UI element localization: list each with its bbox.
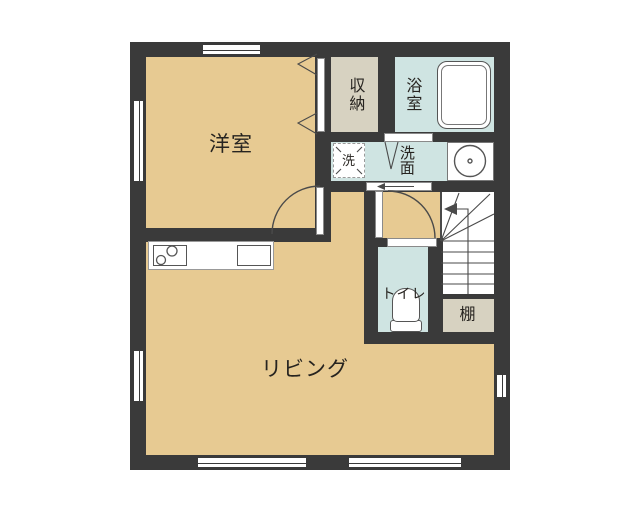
wall-below-toilet-shelf xyxy=(364,332,510,344)
stove xyxy=(153,245,187,266)
hall-door xyxy=(375,191,383,238)
wall-storage-bath xyxy=(378,57,395,142)
hall-cell-floor xyxy=(378,192,440,238)
window-bottom-left xyxy=(197,457,307,468)
living-floor xyxy=(146,242,366,456)
kitchen-sink xyxy=(237,245,271,266)
stairs-floor xyxy=(441,192,494,294)
living-floor-east xyxy=(366,344,494,456)
sink-counter xyxy=(447,142,494,181)
western-room-label: 洋室 xyxy=(209,134,253,156)
window-bottom-right xyxy=(348,457,462,468)
stairs-west-edge xyxy=(440,192,442,241)
wall-stairs-shelf xyxy=(441,294,494,299)
bathtub xyxy=(437,61,491,129)
washroom-label: 洗面 xyxy=(398,145,414,175)
outer-wall-top xyxy=(130,42,510,57)
shelf-label: 棚 xyxy=(459,308,476,325)
wall-western-living xyxy=(146,228,331,242)
window-top xyxy=(202,44,261,55)
western-room-door xyxy=(316,187,324,235)
wall-toilet-stairs xyxy=(428,247,443,332)
window-left-living xyxy=(133,350,144,402)
bathroom-label: 浴室 xyxy=(403,77,420,113)
washer-label: 洗 xyxy=(342,154,356,168)
bath-door xyxy=(384,133,433,142)
window-right-living xyxy=(496,374,507,398)
closet-door xyxy=(317,58,325,132)
toilet-door xyxy=(387,238,437,247)
washroom-sliding-door xyxy=(366,182,432,191)
window-left-western xyxy=(133,100,144,182)
toilet-label: トイレ xyxy=(382,287,427,302)
living-label: リビング xyxy=(261,359,349,381)
outer-wall-right xyxy=(494,42,510,470)
storage-label: 収納 xyxy=(346,77,363,113)
floor-plan: 洋室 収納 浴室 洗 洗面 リビング トイレ 棚 xyxy=(0,0,640,512)
